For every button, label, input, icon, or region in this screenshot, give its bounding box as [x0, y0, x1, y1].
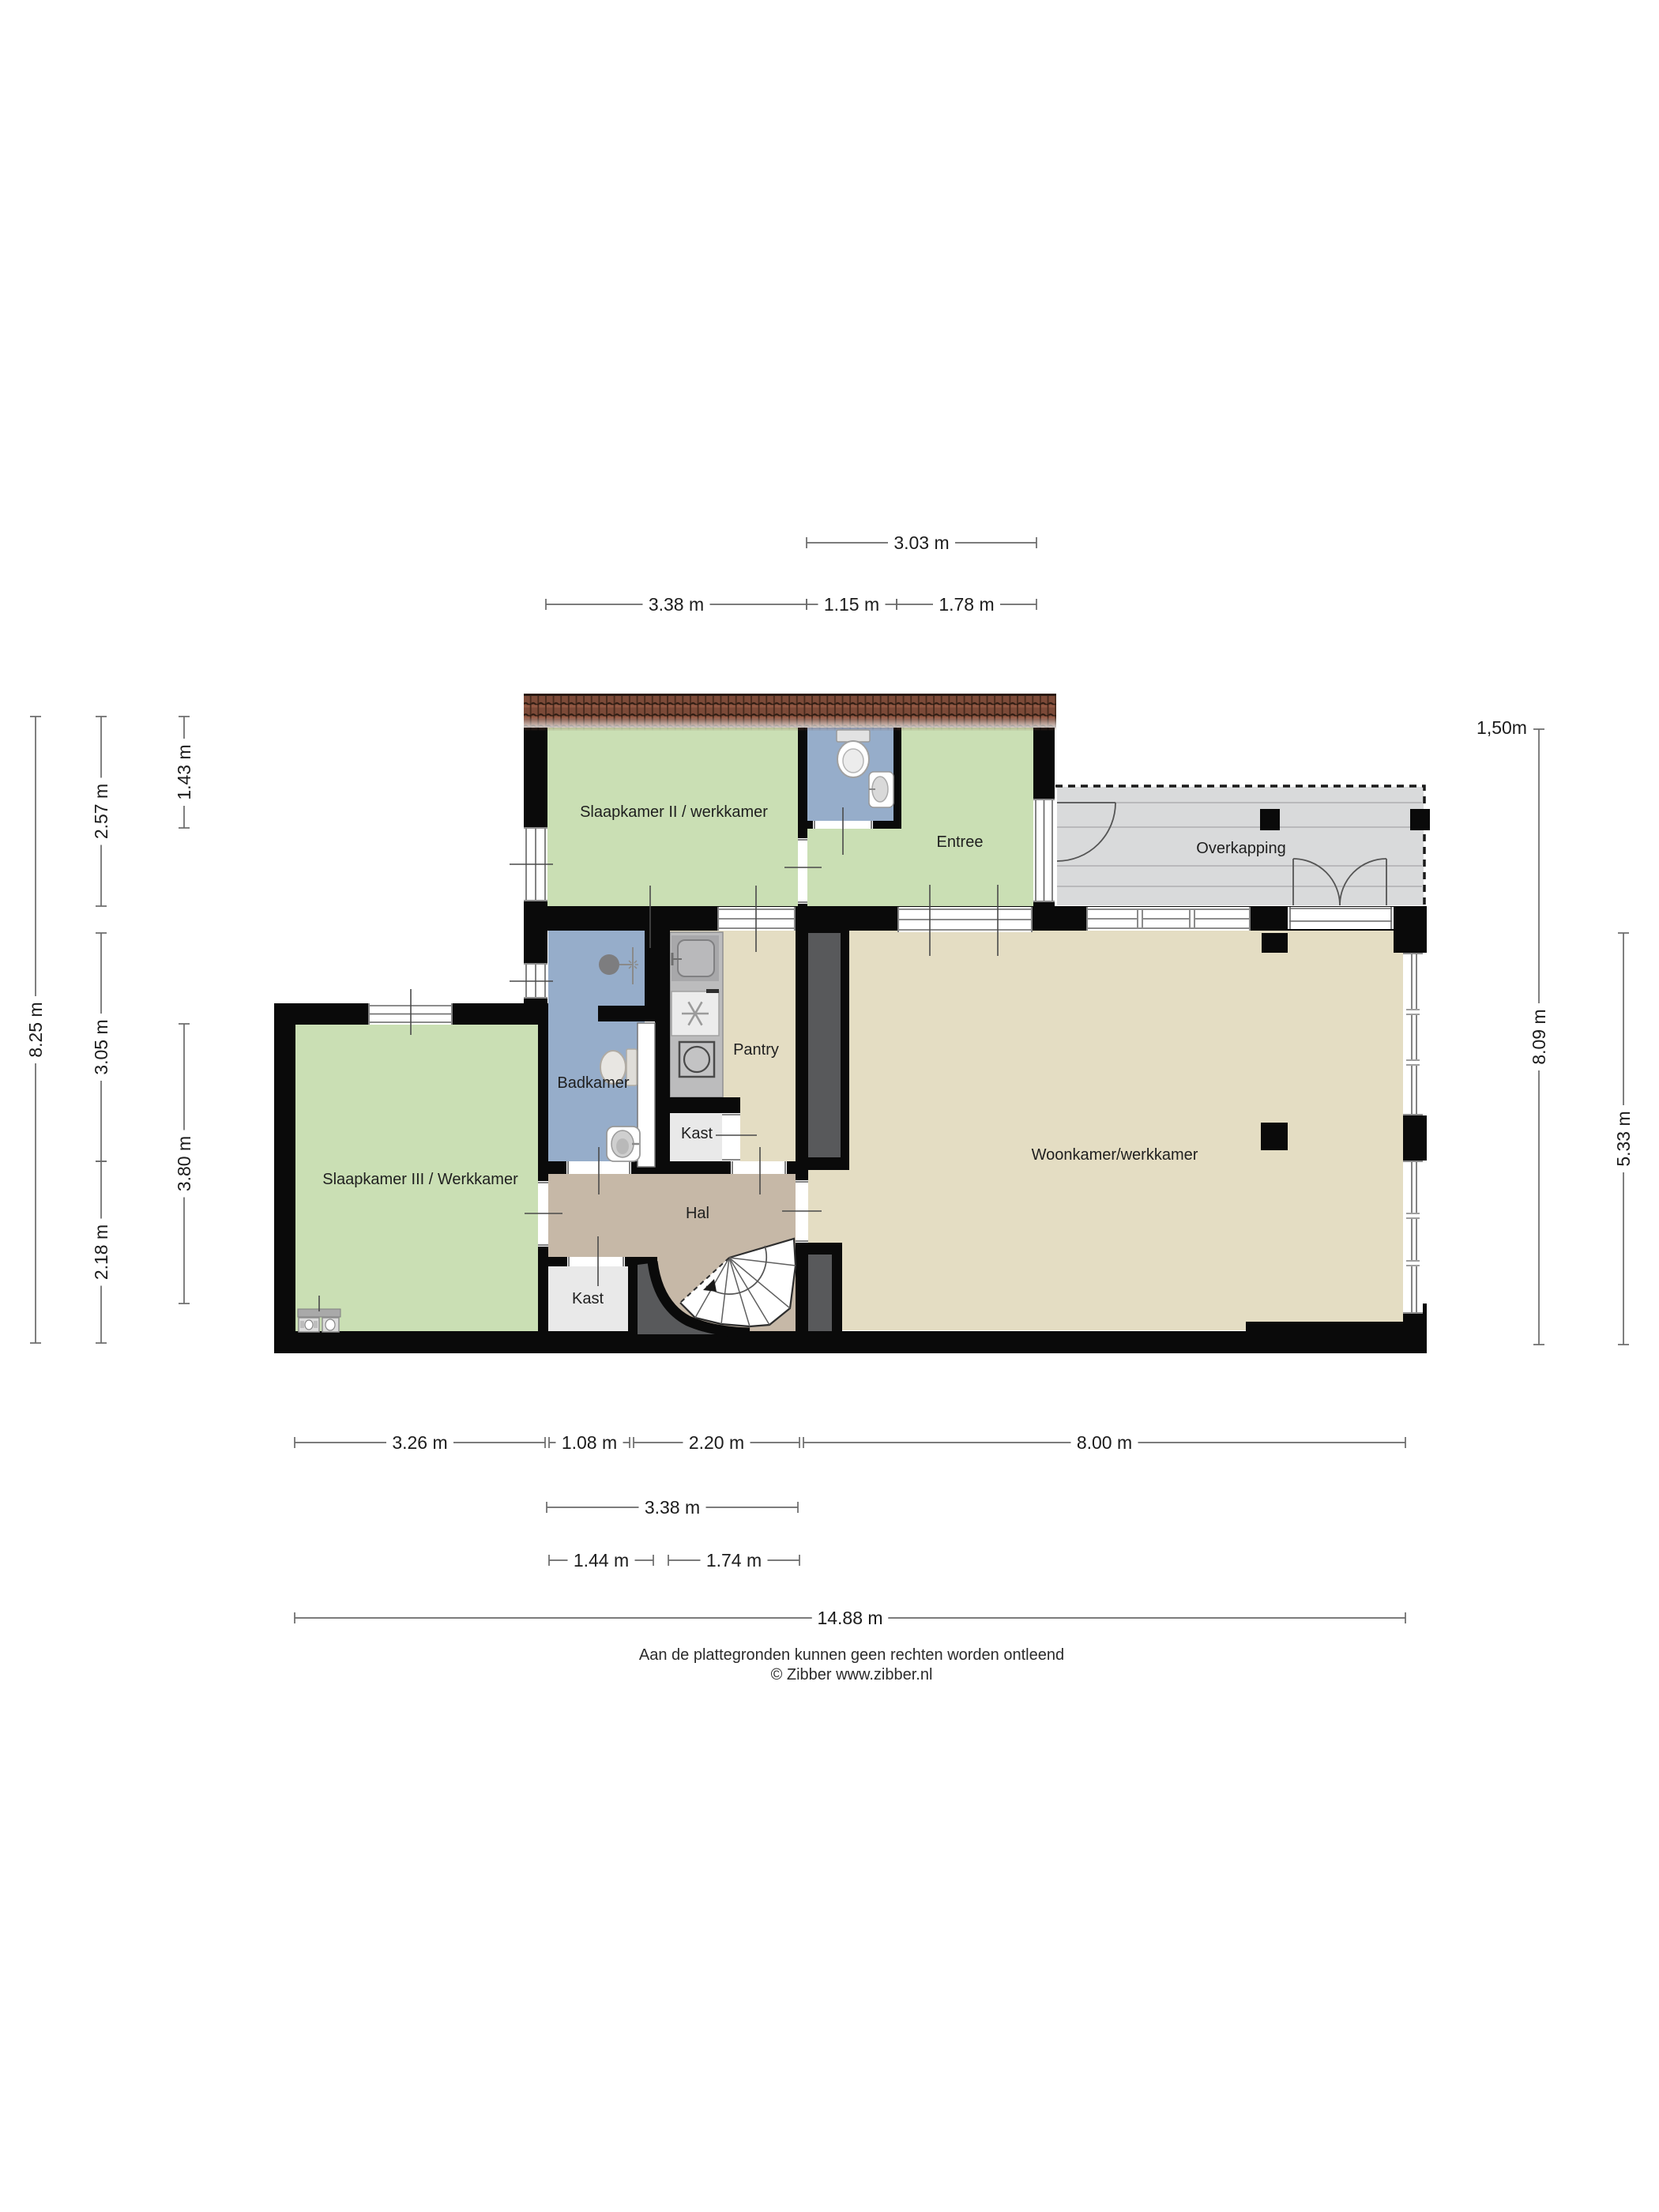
svg-text:Badkamer: Badkamer: [557, 1074, 629, 1092]
svg-text:1.78 m: 1.78 m: [939, 594, 994, 615]
svg-text:8.25 m: 8.25 m: [25, 1002, 46, 1057]
svg-text:2.57 m: 2.57 m: [91, 784, 111, 839]
svg-text:3.38 m: 3.38 m: [645, 1497, 700, 1518]
svg-text:Woonkamer/werkkamer: Woonkamer/werkkamer: [1032, 1146, 1198, 1164]
svg-text:3.80 m: 3.80 m: [174, 1136, 194, 1191]
svg-text:1.15 m: 1.15 m: [824, 594, 879, 615]
svg-text:5.33 m: 5.33 m: [1613, 1111, 1634, 1166]
svg-text:1.08 m: 1.08 m: [562, 1432, 617, 1453]
svg-text:Overkapping: Overkapping: [1196, 840, 1285, 857]
svg-text:14.88 m: 14.88 m: [817, 1608, 882, 1628]
svg-text:8.00 m: 8.00 m: [1077, 1432, 1132, 1453]
svg-text:2.20 m: 2.20 m: [689, 1432, 744, 1453]
svg-text:Kast: Kast: [681, 1125, 713, 1142]
svg-text:Slaapkamer II / werkkamer: Slaapkamer II / werkkamer: [580, 803, 768, 821]
svg-text:© Zibber www.zibber.nl: © Zibber www.zibber.nl: [771, 1666, 933, 1683]
svg-text:Aan de plattegronden kunnen ge: Aan de plattegronden kunnen geen rechten…: [639, 1646, 1064, 1664]
svg-text:1.74 m: 1.74 m: [706, 1550, 762, 1571]
svg-text:1.44 m: 1.44 m: [574, 1550, 629, 1571]
svg-text:1.43 m: 1.43 m: [174, 744, 194, 799]
svg-text:Kast: Kast: [572, 1290, 604, 1307]
svg-text:Pantry: Pantry: [733, 1041, 779, 1059]
svg-text:8.09 m: 8.09 m: [1529, 1009, 1549, 1064]
svg-text:Slaapkamer III / Werkkamer: Slaapkamer III / Werkkamer: [322, 1171, 518, 1188]
svg-text:3.38 m: 3.38 m: [649, 594, 704, 615]
svg-text:Entree: Entree: [937, 833, 984, 851]
svg-text:3.03 m: 3.03 m: [893, 532, 949, 553]
svg-text:Hal: Hal: [686, 1205, 709, 1222]
svg-text:1,50m: 1,50m: [1477, 717, 1527, 738]
svg-text:3.26 m: 3.26 m: [392, 1432, 447, 1453]
svg-text:2.18 m: 2.18 m: [91, 1224, 111, 1280]
svg-text:3.05 m: 3.05 m: [91, 1019, 111, 1074]
